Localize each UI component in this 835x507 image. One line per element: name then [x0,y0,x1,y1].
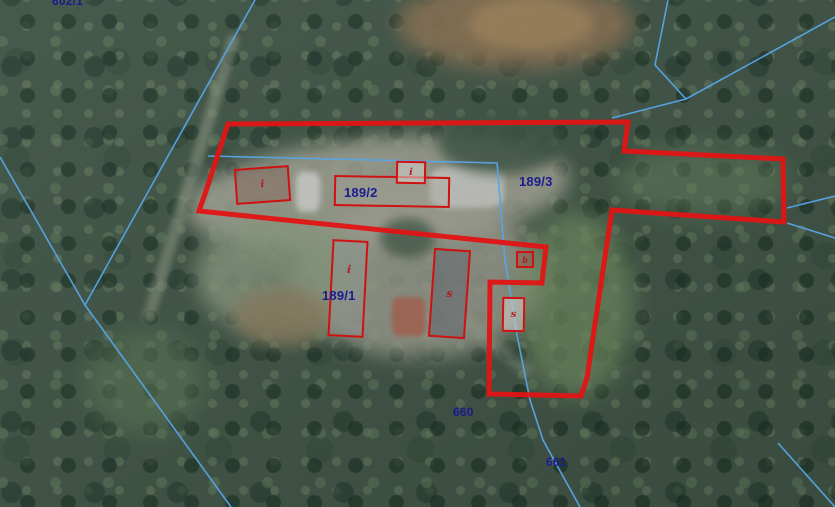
building-use-mark: b [522,256,528,264]
building-outline: i [234,165,291,205]
building-use-mark: i [260,180,265,190]
building-outline: s [502,297,526,332]
parcel-label-660: 660 [453,405,474,419]
parcel-boundary-line [787,196,835,208]
parcel-label-189-1: 189/1 [322,288,356,303]
building-outline: i [396,161,426,185]
parcel-label-189-2: 189/2 [344,185,378,200]
cadastral-overlay [0,0,835,507]
parcel-label-602-1: 602/1 [52,0,83,8]
building-use-mark: s [446,288,453,299]
parcel-boundary-line [655,0,835,99]
parcel-boundary-line [85,305,231,507]
building-use-mark: s [511,309,517,319]
building-use-mark: i [409,167,413,177]
parcel-label-661: 661 [546,455,567,469]
building-outline: s [428,248,471,339]
parcel-boundary-line [778,443,835,507]
parcel-boundary-lines [0,0,835,507]
building-outline: b [516,251,534,268]
parcel-boundary-line [612,99,686,118]
parcel-label-189-3: 189/3 [519,174,553,189]
map-canvas[interactable]: i i b i s s 602/1 189/2 189/3 189/1 660 … [0,0,835,507]
parcel-boundary-line [787,223,835,238]
building-use-mark: i [347,264,352,275]
